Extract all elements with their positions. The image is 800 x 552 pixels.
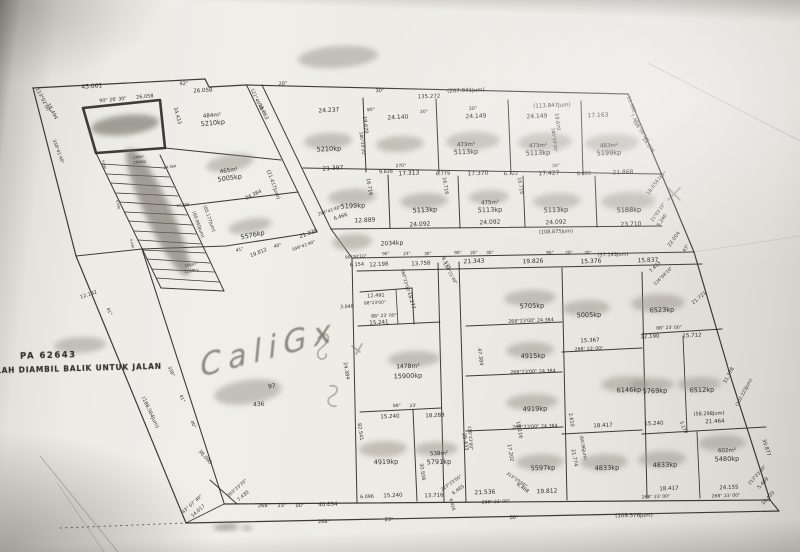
measurement-label: 00° [295,503,305,509]
measurement-label: 602m² [718,447,736,455]
measurement-label: 4915kp [521,352,546,361]
measurement-label: 268°23'00" 24.384 [508,317,554,325]
measurement-label: 13.716 [424,493,444,500]
measurement-label: 14.376 [640,137,655,155]
measurement-label: 2.610 [567,413,575,428]
measurement-label: 20° [278,81,288,87]
measurement-label: 30° [552,163,560,169]
measurement-label: 23° [403,251,411,257]
measurement-label: 16.034 [646,179,661,197]
boundary-line [156,278,219,282]
measurement-label: 41° [105,307,114,317]
measurement-label: 30° [468,106,478,112]
boundary-line [648,63,800,141]
boundary-line [581,101,583,174]
measurement-label: 3.048 [340,304,354,311]
redaction-blur [213,375,284,408]
measurement-label: 5199kp [340,201,365,210]
measurement-label: (188.564Jum) [140,396,160,429]
boundary-line [331,226,662,229]
measurement-label: 24.384 [342,362,351,380]
measurement-label: 30.506 [418,463,426,481]
measurement-label: 24.237 [318,106,340,114]
measurement-label: (102.223Jum) [734,377,754,407]
measurement-label: 45.001 [81,82,103,90]
measurement-label: 24.384 [176,202,190,208]
measurement-label: 436 [253,401,265,409]
measurement-label: 6.465 [451,484,466,497]
boundary-line [40,456,118,552]
boundary-line [661,173,770,500]
measurement-label: 6.154 [350,262,365,269]
redaction-blur [242,526,252,530]
measurement-label: 21.343 [463,258,484,266]
measurement-label: (57.143Jum) [597,251,628,258]
boundary-line [76,249,142,256]
boundary-line [694,236,800,252]
redaction-blur [331,233,372,252]
measurement-label: 6.722 [504,171,519,177]
measurement-label: 6.096 [360,494,374,500]
measurement-label: 15.241 [369,320,389,327]
measurement-label: 268°23'00" [399,268,411,293]
measurement-label: 24.140 [387,113,409,121]
measurement-label: 30° [584,250,592,256]
measurement-label: 82.541 [356,423,364,441]
measurement-label: 17.427 [538,170,559,178]
measurement-label: 40° [273,242,282,250]
measurement-label: 24.149 [465,113,486,121]
measurement-label: 5210kp [200,118,225,128]
measurement-label: 40.634 [318,502,338,509]
measurement-label: 5005kp [577,311,602,320]
measurement-label: 135.272 [417,94,440,101]
measurement-label: 13.758 [411,260,431,267]
measurement-label: 6.779 [436,171,451,177]
redaction-blur [376,135,425,153]
measurement-label: 15900kp [394,372,423,381]
measurement-label: 21.721 [691,290,708,306]
measurement-label: 5188kp [617,206,642,215]
measurement-label: 19.812 [249,247,267,259]
measurement-label: 88° 23' 00" [371,312,397,319]
measurement-label: 5113kp [412,205,437,214]
measurement-label: 6146kp [617,386,642,395]
measurement-label: 6523kp [650,306,675,315]
measurement-label: 21.397 [322,164,344,172]
measurement-label: 12.889 [354,216,376,224]
measurement-label: 97 [268,383,276,391]
measurement-label: 338°41'40" [51,139,65,165]
measurement-label: 17.313 [398,169,420,177]
measurement-label: 5705kp [520,302,545,311]
measurement-label: 23' [409,403,416,409]
boundary-line [458,176,460,228]
measurement-label: 9.838 [379,169,393,176]
measurement-label: 1478m² [396,363,420,371]
measurement-label: 88° [393,403,401,409]
measurement-label: 12.190 [640,334,660,341]
measurement-label: 2034kp [380,239,403,247]
measurement-label: 5769kp [643,387,668,396]
measurement-label: 4919kp [523,405,548,414]
measurement-label: 24.149 [526,113,547,121]
measurement-label: 5210kp [316,144,341,153]
measurement-label: 92° [179,81,189,88]
measurement-label: 12.192 [79,289,97,300]
measurement-label: 24.092 [409,220,431,228]
measurement-label: 20° [420,109,428,115]
boundary-line [595,176,597,227]
measurement-label: 18.417 [659,486,679,493]
measurement-label: 6.096 [101,160,107,170]
boundary-line [246,85,628,94]
measurement-label: 268° 23' 00" [482,499,511,506]
boundary-line [436,99,439,173]
measurement-label: (65.177Jum) [201,205,216,233]
measurement-label: 15.367 [580,338,600,345]
redaction-blur [297,43,378,71]
measurement-label: 24.092 [545,219,566,227]
measurement-label: 6.096 [115,200,121,210]
boundary-line [562,268,567,500]
measurement-label: 88°23'00" [364,299,386,306]
boundary-line [562,430,642,434]
survey-plan-drawing: 45.00190° 26' 30"26.05892°26.058113°02'0… [0,0,800,552]
measurement-label: 6.855 [577,171,592,177]
measurement-label: 5199kp [597,149,622,158]
boundary-line [770,500,779,511]
measurement-label: 268° 23' 00" [712,493,741,500]
measurement-label: 30° [424,251,432,257]
boundary-line [352,258,357,503]
measurement-label: (108.875Jum) [539,228,573,235]
measurement-label: 268°23'00" 24.384 [510,368,556,376]
measurement-label: 5480kp [715,455,740,464]
measurement-label: 21.464 [705,419,725,426]
measurement-label: 21.774 [570,449,579,467]
measurement-label: 90°30'10" [345,253,367,261]
measurement-label: 5791kp [427,458,452,467]
redaction-blur [90,112,160,139]
measurement-label: 21.868 [612,169,633,177]
stamp-reference-number: PA 62643 [20,350,77,361]
boundary-line [161,288,224,291]
measurement-label: 22.004 [667,231,682,249]
boundary-line [413,410,417,501]
measurement-label: 24.155 [719,485,739,492]
boundary-line [508,100,511,174]
redaction-blur [213,524,239,531]
measurement-label: 19.863 [256,102,269,120]
measurement-label: 5113kp [544,206,569,215]
measurement-label: 26.058 [193,87,213,94]
measurement-label: 7.430 [236,489,250,503]
measurement-label: 00° [509,515,518,521]
measurement-label: (207.931Jum) [447,87,485,94]
measurement-label: 6512kp [690,386,715,395]
measurement-label: 15.240 [644,421,664,428]
measurement-label: 16.716 [441,177,450,195]
measurement-label: 538m² [430,450,448,458]
measurement-label: (58.298Jum) [693,410,724,417]
boundary-line [388,175,390,228]
measurement-label: 15.712 [682,333,701,340]
measurement-label: 19.812 [536,488,557,496]
measurement-label: 268° 23' 00" [642,494,671,501]
measurement-label: 12.491 [367,293,385,300]
boundary-line [186,511,779,523]
measurement-label: 5113kp [454,148,479,157]
measurement-label: 23.710 [620,221,641,229]
measurement-label: 6.026 [447,498,456,512]
measurement-label: 21.336 [299,228,320,240]
measurement-label: 20° [565,250,573,256]
measurement-label: 90° [546,250,554,256]
measurement-label: 17.202 [506,444,515,462]
measurement-label: 30° [486,250,494,256]
measurement-label: (113.847Jum) [533,102,571,109]
measurement-label: 23° [384,517,393,523]
boundary-line [205,79,246,87]
measurement-label: 47.384 [476,348,484,366]
measurement-label: 5113kp [478,206,503,215]
boundary-line [396,290,398,324]
measurement-label: 23° [277,503,287,509]
scanned-survey-plan-photo: 45.00190° 26' 30"26.05892°26.058113°02'0… [0,0,800,552]
measurement-label: 24.384 [244,189,262,202]
measurement-label: 40° [189,420,198,430]
measurement-label: 41° [235,246,244,254]
redaction-blur [359,440,408,458]
measurement-label: 6.096 [129,239,135,249]
measurement-label: 268° 23' 00" [575,346,604,353]
measurement-label: 15.240 [380,414,400,421]
measurement-label: 18.288 [425,413,445,420]
measurement-label: 268° [258,503,271,509]
measurement-label: 4833kp [653,461,678,470]
measurement-label: 4919kp [374,458,399,467]
boundary-line [60,523,186,528]
measurement-label: 17.370 [467,170,488,178]
measurement-label: 268° [318,519,331,525]
measurement-label: 90° [367,107,375,113]
measurement-label: 21.536 [474,489,495,497]
measurement-label: 41° [178,394,187,404]
measurement-label: (60.96Jum) [578,435,588,461]
measurement-label: 338° [166,365,176,377]
measurement-label: 24.092 [479,219,500,227]
measurement-label: 31.378 [722,366,736,384]
measurement-label: 20° [470,250,478,256]
measurement-label: 12.198 [369,261,389,268]
measurement-label: 270° [395,163,406,170]
measurement-label: 4833kp [595,464,620,473]
measurement-label: 34.433 [172,107,182,125]
measurement-label: 18.417 [593,423,613,430]
measurement-label: 15.376 [580,258,601,266]
measurement-label: 5113kp [526,149,551,158]
pencil-scribble [328,386,337,407]
measurement-label: 90° [454,250,462,256]
measurement-label: 30.877 [760,438,771,456]
measurement-label: 88° 23' 00" [656,325,682,332]
measurement-label: 5597kp [531,464,556,473]
boundary-line [438,263,444,502]
boundary-line [459,262,466,502]
measurement-label: 90° [382,251,390,257]
measurement-label: 24.384 [163,164,177,170]
boundary-line [58,484,104,552]
measurement-label: (109.576Jum) [615,513,653,520]
measurement-label: 18.277 [406,292,416,310]
measurement-label: 19.826 [522,258,543,266]
measurement-label: 11.092 [625,95,637,113]
measurement-label: 349°41'40" [291,239,316,253]
measurement-label: 15.240 [383,493,403,500]
measurement-label: 17.163 [587,112,608,120]
measurement-label: 36.090 [197,449,213,466]
measurement-label: 6.466 [333,212,348,222]
measurement-label: 1599kp [184,267,199,274]
measurement-label: 30° [375,88,385,94]
